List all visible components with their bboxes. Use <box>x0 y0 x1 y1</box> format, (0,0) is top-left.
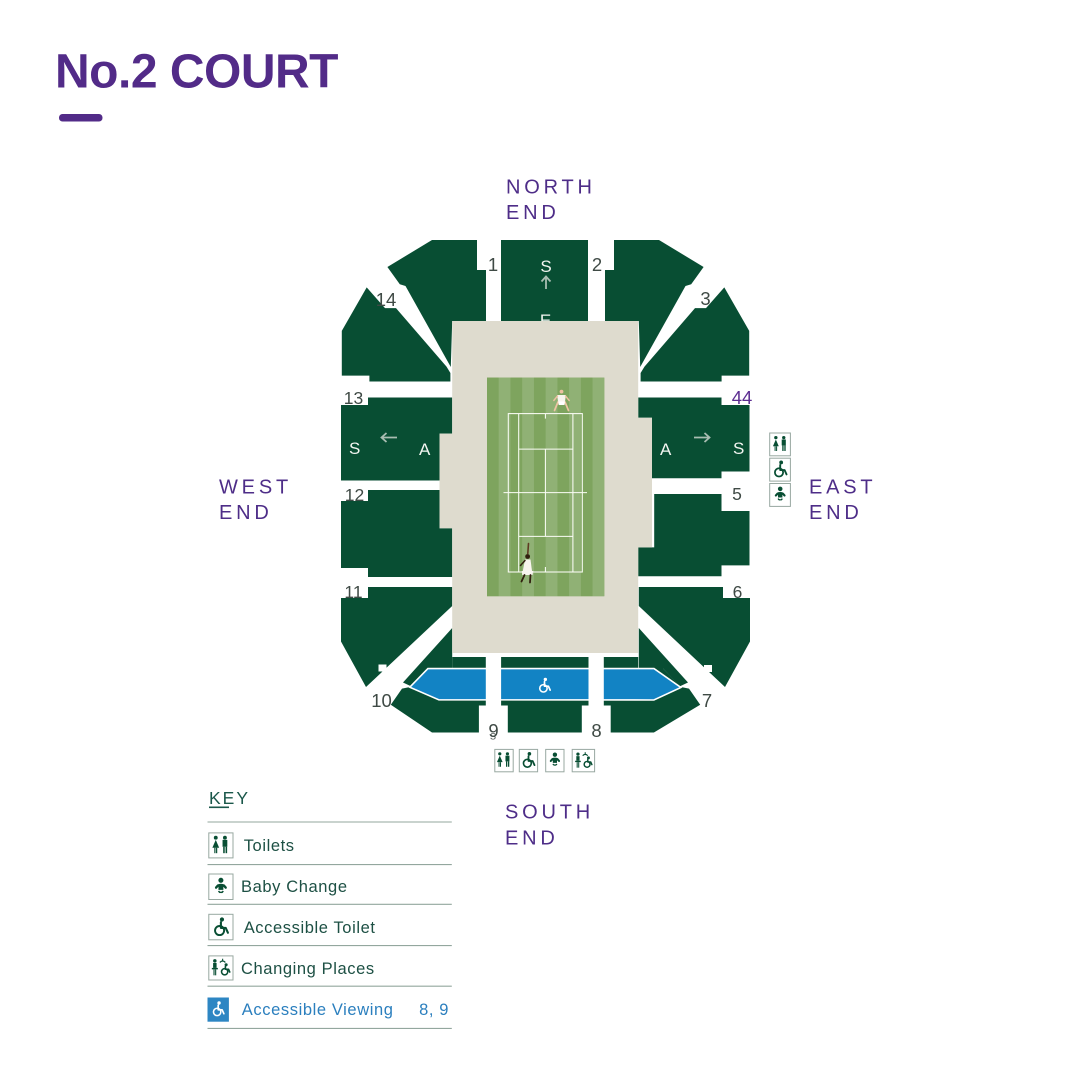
svg-text:Baby Change: Baby Change <box>241 878 348 896</box>
svg-text:S: S <box>733 439 744 458</box>
svg-text:10: 10 <box>371 690 392 711</box>
svg-text:S: S <box>349 439 360 458</box>
svg-text:Accessible Toilet: Accessible Toilet <box>244 919 376 937</box>
svg-text:13: 13 <box>344 388 363 408</box>
svg-text:No.2 COURT: No.2 COURT <box>55 46 338 99</box>
svg-text:WEST: WEST <box>219 477 292 499</box>
svg-text:A: A <box>660 440 672 459</box>
svg-text:SOUTH: SOUTH <box>505 802 594 824</box>
svg-text:Accessible Viewing: Accessible Viewing <box>242 1001 394 1019</box>
svg-text:END: END <box>506 202 560 224</box>
svg-text:2: 2 <box>592 254 602 275</box>
svg-text:12: 12 <box>345 485 364 505</box>
svg-text:END: END <box>219 502 273 524</box>
svg-text:5: 5 <box>732 484 742 504</box>
svg-text:NORTH: NORTH <box>506 177 596 199</box>
svg-text:Toilets: Toilets <box>244 837 295 855</box>
svg-text:14: 14 <box>376 289 397 310</box>
svg-text:EAST: EAST <box>809 477 876 499</box>
svg-text:6: 6 <box>733 582 743 602</box>
svg-text:A: A <box>419 440 431 459</box>
svg-text:KEY: KEY <box>209 788 250 808</box>
svg-text:3: 3 <box>700 288 710 309</box>
svg-text:7: 7 <box>702 690 712 711</box>
svg-text:1: 1 <box>488 254 498 275</box>
svg-text:S: S <box>490 732 496 742</box>
svg-text:8: 8 <box>591 720 601 741</box>
svg-text:8, 9: 8, 9 <box>419 1001 449 1019</box>
svg-text:11: 11 <box>344 582 362 602</box>
svg-text:S: S <box>540 257 551 276</box>
svg-text:44: 44 <box>732 387 753 408</box>
svg-text:END: END <box>505 828 559 850</box>
svg-text:Changing Places: Changing Places <box>241 960 375 978</box>
svg-text:END: END <box>809 502 863 524</box>
